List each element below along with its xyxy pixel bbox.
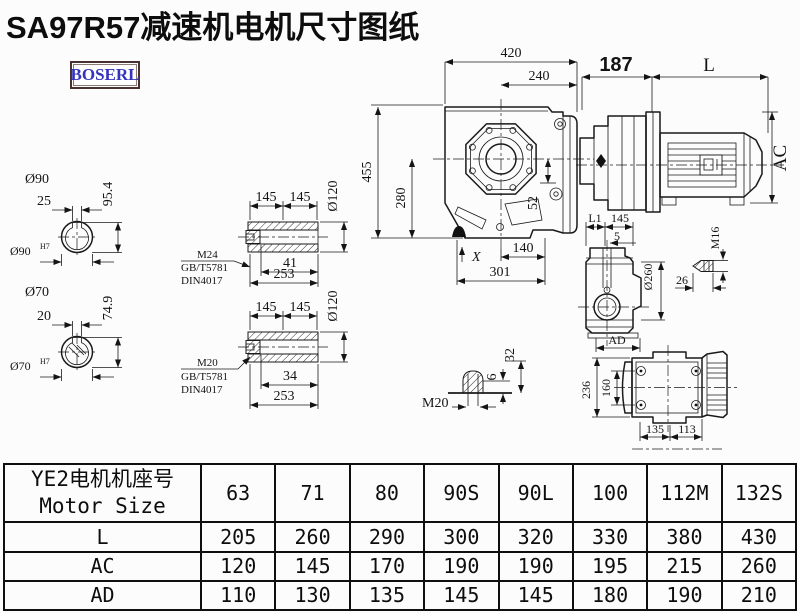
dim-140: 140 bbox=[513, 241, 534, 256]
table-row-L: L 205 260 290 300 320 330 380 430 bbox=[4, 522, 796, 551]
dim-95-4: 95.4 bbox=[101, 182, 116, 207]
bottom-view: 236 160 135 113 bbox=[579, 345, 737, 449]
label-m24: M24 bbox=[197, 249, 218, 261]
dim-L: L bbox=[703, 55, 715, 76]
side-view: L1 145 5 Ø260 AD bbox=[578, 211, 665, 352]
label-bore70: Ø70 bbox=[10, 359, 31, 373]
dim-301: 301 bbox=[490, 265, 511, 280]
cell: 190 bbox=[424, 552, 498, 581]
dim-135: 135 bbox=[646, 422, 664, 436]
dim-52: 52 bbox=[526, 196, 541, 210]
cell: 110 bbox=[201, 581, 275, 610]
table-row-AC: AC 120 145 170 190 190 195 215 260 bbox=[4, 552, 796, 581]
shaft-section-70: Ø70 20 74.9 Ø70 H7 bbox=[10, 285, 122, 381]
dim-253-2: 253 bbox=[274, 389, 295, 404]
dim-240: 240 bbox=[529, 69, 550, 84]
label-m20: M20 bbox=[197, 357, 218, 369]
cell: 205 bbox=[201, 522, 275, 551]
dim-34: 34 bbox=[283, 369, 297, 384]
dim-145e: 145 bbox=[611, 211, 629, 225]
table-header-row: YE2电机机座号 Motor Size 63 71 80 90S 90L 100… bbox=[4, 464, 796, 522]
dim-420: 420 bbox=[501, 46, 522, 61]
plug-detail bbox=[452, 226, 466, 237]
table-header-motor-size: YE2电机机座号 Motor Size bbox=[4, 464, 201, 522]
dim-key25: 25 bbox=[37, 194, 51, 209]
label-gbt-2: GB/T5781 bbox=[181, 371, 228, 383]
drawing-sheet: { "title": "SA97R57减速机电机尺寸图纸", "logo": "… bbox=[0, 0, 800, 613]
motor bbox=[576, 112, 784, 212]
dim-X: X bbox=[471, 250, 481, 265]
cell: 290 bbox=[350, 522, 424, 551]
cell: 260 bbox=[722, 552, 796, 581]
input-adapter bbox=[580, 116, 646, 210]
col-90l: 90L bbox=[499, 464, 573, 522]
col-112m: 112M bbox=[647, 464, 721, 522]
label-bore90: Ø90 bbox=[10, 244, 31, 258]
label-din-2: DIN4017 bbox=[181, 384, 223, 396]
motor-size-table: YE2电机机座号 Motor Size 63 71 80 90S 90L 100… bbox=[3, 463, 797, 611]
cell: 380 bbox=[647, 522, 721, 551]
row-label-AC: AC bbox=[4, 552, 201, 581]
cell: 195 bbox=[573, 552, 647, 581]
label-bore70-tol: H7 bbox=[40, 357, 50, 366]
cell: 210 bbox=[722, 581, 796, 610]
label-m16: M16 bbox=[708, 227, 722, 250]
header-cn: YE2电机机座号 bbox=[5, 466, 200, 493]
header-en: Motor Size bbox=[5, 493, 200, 520]
cell: 330 bbox=[573, 522, 647, 551]
row-label-L: L bbox=[4, 522, 201, 551]
dim-236: 236 bbox=[579, 381, 593, 399]
bolt-detail-m20: 6 32 M20 bbox=[422, 348, 526, 411]
cell: 320 bbox=[499, 522, 573, 551]
cell: 260 bbox=[275, 522, 349, 551]
shaft-key-mark bbox=[596, 154, 606, 168]
dim-26: 26 bbox=[676, 273, 688, 287]
dim-145c: 145 bbox=[256, 300, 277, 315]
dim-6: 6 bbox=[485, 374, 500, 381]
cell: 145 bbox=[499, 581, 573, 610]
cell: 180 bbox=[573, 581, 647, 610]
dim-455: 455 bbox=[360, 162, 375, 183]
dim-253-1: 253 bbox=[274, 267, 295, 282]
dim-32: 32 bbox=[503, 348, 518, 362]
shaft-section-90: Ø90 25 95.4 Ø90 H7 bbox=[10, 172, 122, 266]
cell: 215 bbox=[647, 552, 721, 581]
cell: 135 bbox=[350, 581, 424, 610]
dim-AC: AC bbox=[770, 145, 791, 171]
row-label-AD: AD bbox=[4, 581, 201, 610]
dim-L1: L1 bbox=[588, 211, 601, 225]
dim-5: 5 bbox=[614, 229, 620, 243]
col-100: 100 bbox=[573, 464, 647, 522]
front-view-dimensions: 420 240 187 L AC 455 280 52 X 140 bbox=[360, 46, 791, 285]
col-132s: 132S bbox=[722, 464, 796, 522]
front-view: 420 240 187 L AC 455 280 52 X 140 bbox=[360, 46, 791, 285]
dim-280: 280 bbox=[394, 188, 409, 209]
dim-dia120-2: Ø120 bbox=[326, 290, 341, 321]
dim-key20: 20 bbox=[37, 309, 51, 324]
label-gbt-1: GB/T5781 bbox=[181, 262, 228, 274]
dim-dia260: Ø260 bbox=[641, 264, 655, 291]
label-bolt-m20: M20 bbox=[422, 396, 448, 411]
cell: 170 bbox=[350, 552, 424, 581]
dim-145b: 145 bbox=[290, 190, 311, 205]
dim-AD: AD bbox=[608, 333, 626, 347]
label-dia90: Ø90 bbox=[25, 172, 49, 187]
cell: 430 bbox=[722, 522, 796, 551]
dim-74-9: 74.9 bbox=[101, 296, 116, 321]
col-90s: 90S bbox=[424, 464, 498, 522]
dim-dia120-1: Ø120 bbox=[326, 180, 341, 211]
dim-187: 187 bbox=[599, 54, 632, 76]
cell: 300 bbox=[424, 522, 498, 551]
cell: 190 bbox=[499, 552, 573, 581]
table-row-AD: AD 110 130 135 145 145 180 190 210 bbox=[4, 581, 796, 610]
cell: 145 bbox=[424, 581, 498, 610]
hollow-shaft-1: 145 145 Ø120 41 253 M24 GB/T5781 DIN4017 bbox=[181, 180, 348, 287]
col-71: 71 bbox=[275, 464, 349, 522]
dim-145a: 145 bbox=[256, 190, 277, 205]
hollow-shaft-2: 145 145 Ø120 34 253 M20 GB/T5781 DIN4017 bbox=[181, 290, 348, 409]
cell: 145 bbox=[275, 552, 349, 581]
col-80: 80 bbox=[350, 464, 424, 522]
cell: 120 bbox=[201, 552, 275, 581]
label-din-1: DIN4017 bbox=[181, 275, 223, 287]
technical-drawing: 420 240 187 L AC 455 280 52 X 140 bbox=[0, 0, 800, 462]
cell: 190 bbox=[647, 581, 721, 610]
dim-145d: 145 bbox=[290, 300, 311, 315]
cell: 130 bbox=[275, 581, 349, 610]
col-63: 63 bbox=[201, 464, 275, 522]
label-dia70: Ø70 bbox=[25, 285, 49, 300]
label-bore90-tol: H7 bbox=[40, 242, 50, 251]
dim-113: 113 bbox=[678, 422, 696, 436]
dim-160: 160 bbox=[599, 379, 613, 397]
bolt-detail-m16: M16 26 bbox=[675, 227, 728, 292]
